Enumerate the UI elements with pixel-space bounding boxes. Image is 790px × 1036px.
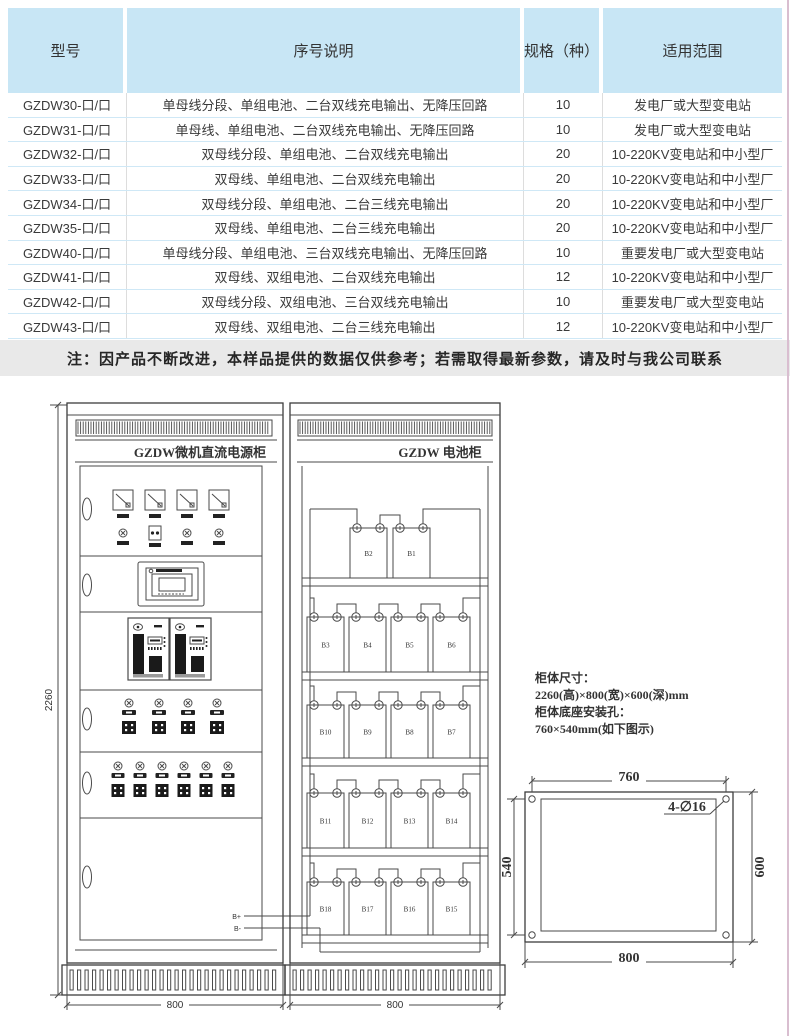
table-cell: 双母线分段、单组电池、二台三线充电输出 [127,191,524,215]
mount-left-dim-label: 540 [500,857,515,878]
spec-table-header: 型号 序号说明 规格（种） 适用范围 [8,8,782,93]
battery-label: B10 [320,729,332,737]
battery-cabinet-title: GZDW 电池柜 [398,445,481,460]
table-cell: 双母线、双组电池、二台双线充电输出 [127,265,524,289]
battery-label: B8 [405,729,414,737]
column-header-scope: 适用范围 [603,8,782,93]
battery-label: B11 [320,818,332,826]
table-cell: 单母线分段、单组电池、二台双线充电输出、无降压回路 [127,93,524,117]
battery-shelves: B2B1B3B4B5B6B10B9B8B7B11B12B13B14B18B17B… [302,509,488,943]
table-cell: GZDW40-口/口 [8,241,127,265]
table-cell: GZDW30-口/口 [8,93,127,117]
analog-meters-panel [113,490,229,518]
table-cell: GZDW41-口/口 [8,265,127,289]
cabinet-dimensions-text: 柜体尺寸： 2260(高)×800(宽)×600(深)mm 柜体底座安装孔： 7… [534,670,689,736]
table-cell: 10-220KV变电站和中小型厂 [603,216,782,240]
spec-table: 型号 序号说明 规格（种） 适用范围 GZDW30-口/口单母线分段、单组电池、… [8,8,782,339]
column-header-model: 型号 [8,8,127,93]
table-cell: GZDW31-口/口 [8,118,127,142]
battery-label: B1 [407,550,416,558]
power-cabinet-width-label: 800 [167,1000,184,1011]
mount-top-dim-label: 760 [619,770,640,785]
table-cell: 双母线、双组电池、二台三线充电输出 [127,314,524,338]
table-cell: GZDW32-口/口 [8,142,127,166]
cabinet-drawing: 2260 GZDW微机直流电源柜 [0,376,790,1036]
table-cell: 双母线、单组电池、二台三线充电输出 [127,216,524,240]
height-dimension: 2260 [44,402,67,998]
table-row: GZDW34-口/口双母线分段、单组电池、二台三线充电输出2010-220KV变… [8,191,782,216]
table-cell: 10-220KV变电站和中小型厂 [603,314,782,338]
table-cell: GZDW43-口/口 [8,314,127,338]
table-cell: 发电厂或大型变电站 [603,93,782,117]
table-cell: 单母线分段、单组电池、三台双线充电输出、无降压回路 [127,241,524,265]
table-cell: GZDW33-口/口 [8,167,127,191]
breaker-rows [112,699,235,797]
battery-label: B12 [362,818,374,826]
battery-label: B6 [447,642,456,650]
battery-label: B18 [320,906,332,914]
table-row: GZDW35-口/口双母线、单组电池、二台三线充电输出2010-220KV变电站… [8,216,782,241]
table-cell: 双母线分段、双组电池、三台双线充电输出 [127,290,524,314]
vent-grille-right [298,420,492,436]
table-cell: 20 [524,142,603,166]
battery-shelf: B11B12B13B14 [302,774,488,856]
battery-label: B13 [404,818,416,826]
table-cell: 10 [524,93,603,117]
monitor-unit [138,562,204,606]
table-cell: 12 [524,265,603,289]
table-row: GZDW32-口/口双母线分段、单组电池、二台双线充电输出2010-220KV变… [8,142,782,167]
table-cell: 10-220KV变电站和中小型厂 [603,142,782,166]
table-cell: 10-220KV变电站和中小型厂 [603,191,782,215]
battery-label: B17 [362,906,374,914]
battery-label: B9 [363,729,372,737]
battery-shelf: B2B1 [302,509,488,586]
table-cell: 10-220KV变电站和中小型厂 [603,265,782,289]
battery-label: B14 [446,818,458,826]
height-dim-label: 2260 [44,688,55,711]
column-header-description: 序号说明 [127,8,524,93]
table-cell: 10 [524,241,603,265]
power-cabinet-title: GZDW微机直流电源柜 [134,445,266,460]
table-cell: 10-220KV变电站和中小型厂 [603,167,782,191]
mount-hole-callout: 4-∅16 [668,800,706,815]
table-cell: GZDW42-口/口 [8,290,127,314]
table-cell: 单母线、单组电池、二台双线充电输出、无降压回路 [127,118,524,142]
table-cell: 双母线分段、单组电池、二台双线充电输出 [127,142,524,166]
battery-label: B5 [405,642,414,650]
indicator-lamps-row [117,526,225,547]
spec-line-1: 柜体尺寸： [534,670,595,685]
charger-modules [128,618,211,680]
battery-shelf: B10B9B8B7 [302,686,488,766]
catalog-page: 型号 序号说明 规格（种） 适用范围 GZDW30-口/口单母线分段、单组电池、… [0,0,790,1036]
table-cell: GZDW34-口/口 [8,191,127,215]
table-cell: 20 [524,216,603,240]
disclaimer-note: 注：因产品不断改进，本样品提供的数据仅供参考；若需取得最新参数，请及时与我公司联… [0,340,790,376]
battery-label: B15 [446,906,458,914]
power-cabinet-drawing: GZDW微机直流电源柜 [62,403,320,1011]
battery-shelf: B18B17B16B15 [302,863,488,943]
battery-cabinet-width-dim: 800 [287,963,503,1011]
battery-label: B2 [364,550,373,558]
table-row: GZDW30-口/口单母线分段、单组电池、二台双线充电输出、无降压回路10发电厂… [8,93,782,118]
terminal-negative-label: B- [234,926,242,933]
table-row: GZDW41-口/口双母线、双组电池、二台双线充电输出1210-220KV变电站… [8,265,782,290]
spec-line-2: 2260(高)×800(宽)×600(深)mm [535,687,689,702]
battery-label: B4 [363,642,372,650]
table-row: GZDW33-口/口双母线、单组电池、二台双线充电输出2010-220KV变电站… [8,167,782,192]
table-cell: 20 [524,191,603,215]
table-row: GZDW43-口/口双母线、双组电池、二台三线充电输出1210-220KV变电站… [8,314,782,339]
battery-shelf: B3B4B5B6 [302,598,488,680]
battery-label: B7 [447,729,456,737]
spec-table-body: GZDW30-口/口单母线分段、单组电池、二台双线充电输出、无降压回路10发电厂… [8,93,782,339]
column-header-spec: 规格（种） [524,8,603,93]
mount-bottom-dim-label: 800 [619,951,640,966]
table-cell: 20 [524,167,603,191]
battery-cabinet-drawing: GZDW 电池柜 B2B1B3B4B5B6B10B9B8B7B11B12B13B… [285,403,505,1011]
table-cell: 12 [524,314,603,338]
terminal-positive-label: B+ [232,914,241,921]
battery-cabinet-width-label: 800 [387,1000,404,1011]
table-cell: 10 [524,290,603,314]
table-cell: 发电厂或大型变电站 [603,118,782,142]
spec-line-3: 柜体底座安装孔： [534,704,631,719]
table-cell: GZDW35-口/口 [8,216,127,240]
table-cell: 重要发电厂或大型变电站 [603,290,782,314]
mounting-hole-diagram: 760 800 540 600 4-∅16 [500,768,768,968]
table-cell: 重要发电厂或大型变电站 [603,241,782,265]
table-row: GZDW40-口/口单母线分段、单组电池、三台双线充电输出、无降压回路10重要发… [8,241,782,266]
table-row: GZDW42-口/口双母线分段、双组电池、三台双线充电输出10重要发电厂或大型变… [8,290,782,315]
table-cell: 10 [524,118,603,142]
table-cell: 双母线、单组电池、二台双线充电输出 [127,167,524,191]
spec-line-4: 760×540mm(如下图示) [535,721,654,736]
battery-label: B3 [321,642,330,650]
table-row: GZDW31-口/口单母线、单组电池、二台双线充电输出、无降压回路10发电厂或大… [8,118,782,143]
mount-right-dim-label: 600 [753,857,768,878]
page-edge-accent [787,0,789,1036]
battery-label: B16 [404,906,416,914]
